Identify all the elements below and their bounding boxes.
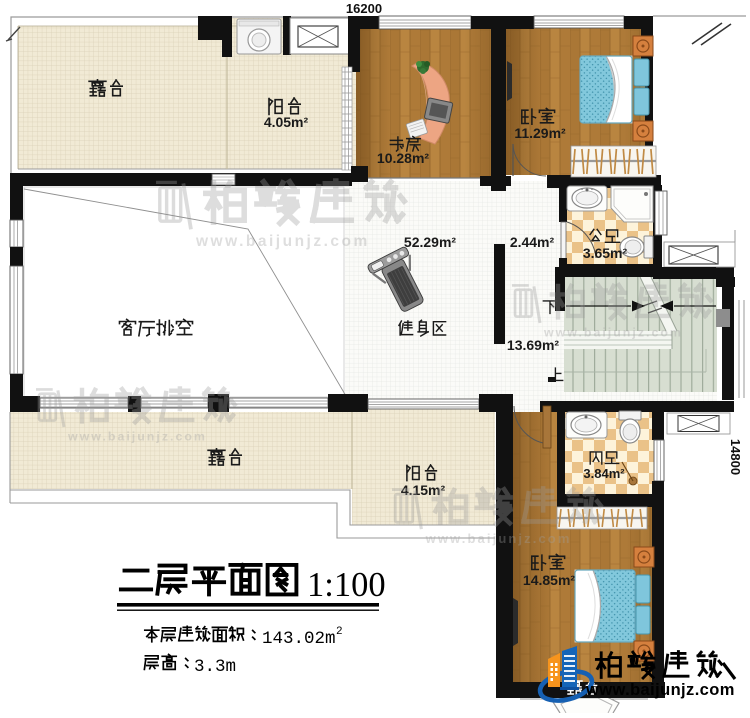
- svg-text:11.29m²: 11.29m²: [514, 125, 566, 141]
- svg-text:52.29m²: 52.29m²: [404, 234, 456, 250]
- svg-text:2.44m²: 2.44m²: [510, 234, 555, 250]
- svg-text:www.baijunjz.com: www.baijunjz.com: [585, 681, 735, 699]
- svg-text:3.65m²: 3.65m²: [583, 245, 628, 261]
- svg-text:www.baijunjz.com: www.baijunjz.com: [195, 233, 370, 250]
- svg-text:4.05m²: 4.05m²: [264, 114, 309, 130]
- svg-text:143.02m: 143.02m: [262, 629, 336, 649]
- svg-text:14.85m²: 14.85m²: [523, 572, 575, 588]
- svg-text:www.baijunjz.com: www.baijunjz.com: [67, 429, 207, 443]
- svg-text:3.84m²: 3.84m²: [583, 466, 625, 481]
- svg-text:www.baijunjz.com: www.baijunjz.com: [543, 325, 683, 339]
- svg-text:1:100: 1:100: [307, 566, 386, 604]
- svg-text:16200: 16200: [346, 1, 382, 16]
- svg-text:10.28m²: 10.28m²: [377, 150, 429, 166]
- svg-text:14800: 14800: [728, 439, 743, 475]
- svg-text:www.baijunjz.com: www.baijunjz.com: [425, 531, 572, 546]
- svg-text:3.3m: 3.3m: [194, 657, 236, 677]
- svg-text:2: 2: [336, 626, 343, 638]
